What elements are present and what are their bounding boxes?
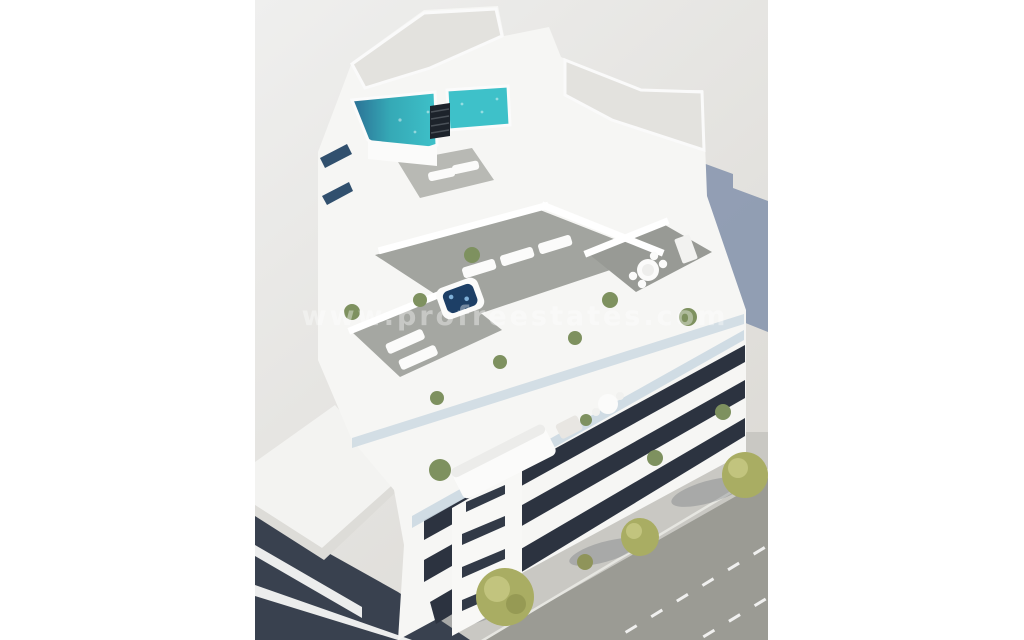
shrub [577,554,593,570]
watermark-text: www.profreestates.com [302,301,729,332]
tree [476,568,534,626]
pool-chimney [430,103,450,139]
architectural-render: www.profreestates.com [0,0,1024,640]
render-stage: www.profreestates.com [0,0,1024,640]
tree [722,452,768,498]
tree [621,518,659,556]
pool-basin-right [447,86,510,130]
